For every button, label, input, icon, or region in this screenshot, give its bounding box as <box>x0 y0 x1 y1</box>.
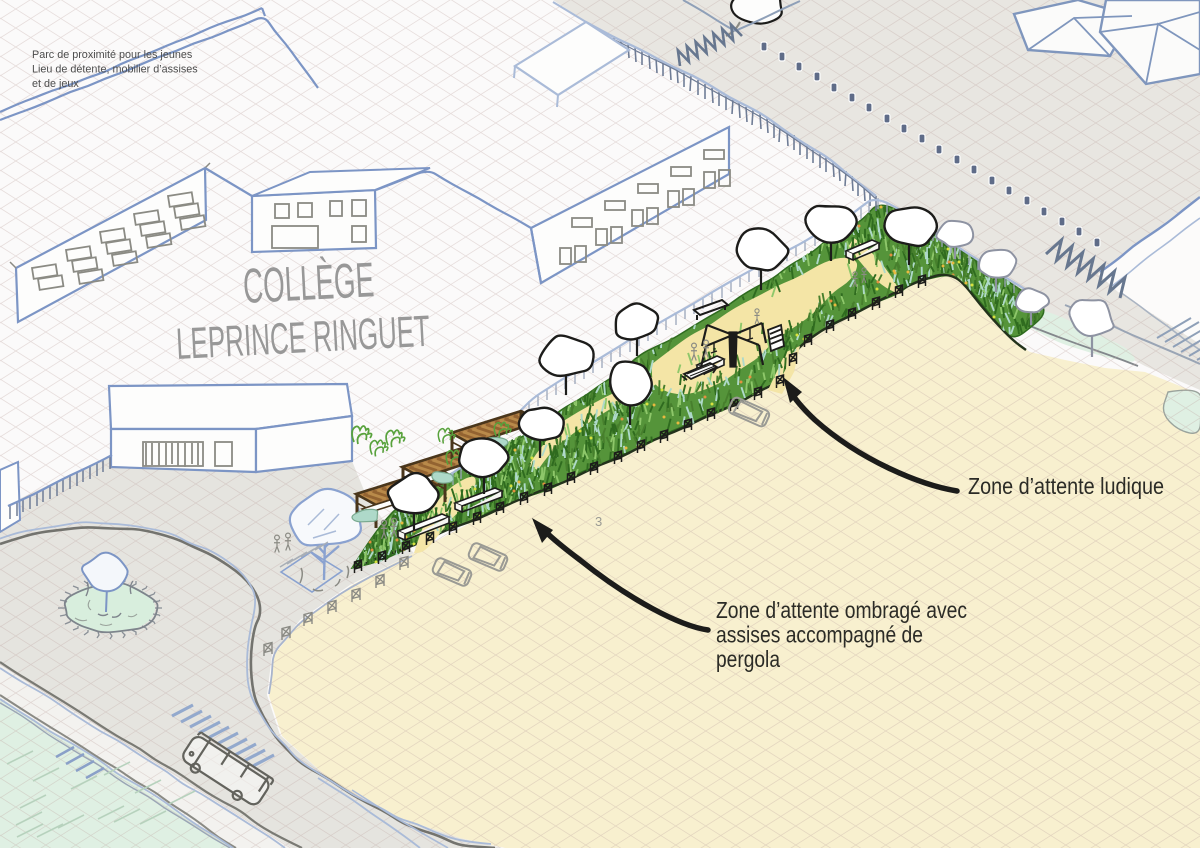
svg-text:Zone d’attente ombragé avec: Zone d’attente ombragé avec <box>716 597 967 623</box>
svg-text:assises accompagné de: assises accompagné de <box>716 622 923 648</box>
svg-text:3: 3 <box>595 514 602 529</box>
svg-text:COLLÈGE: COLLÈGE <box>242 253 376 314</box>
svg-text:Zone d’attente ludique: Zone d’attente ludique <box>968 473 1164 499</box>
svg-text:pergola: pergola <box>716 646 781 672</box>
